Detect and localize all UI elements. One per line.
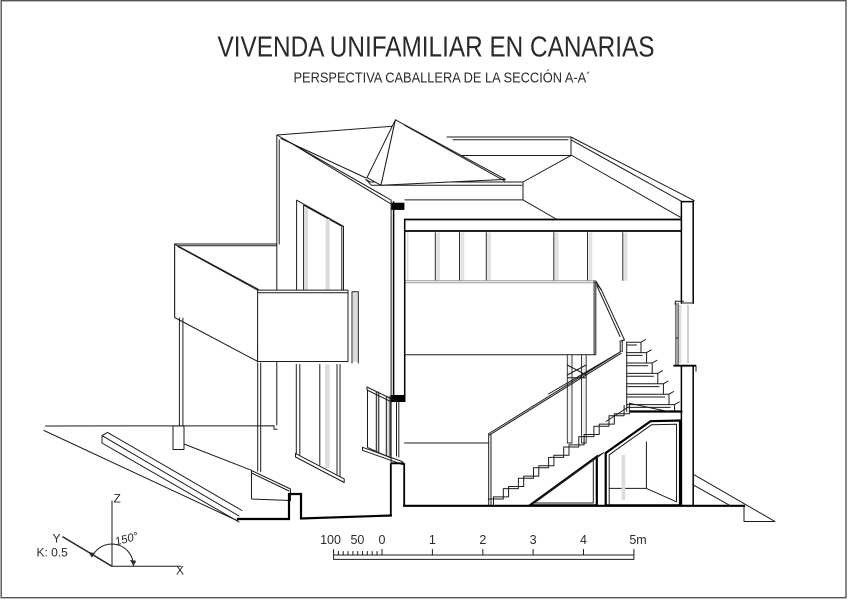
svg-text:4: 4 — [580, 533, 587, 547]
svg-text:X: X — [176, 564, 184, 578]
svg-text:0: 0 — [379, 533, 386, 547]
svg-text:1: 1 — [429, 533, 436, 547]
svg-text:VIVENDA UNIFAMILIAR EN CANARIA: VIVENDA UNIFAMILIAR EN CANARIAS — [218, 32, 655, 64]
svg-text:PERSPECTIVA CABALLERA DE LA SE: PERSPECTIVA CABALLERA DE LA SECCIÓN A-A´ — [294, 70, 591, 87]
svg-text:Y: Y — [53, 532, 61, 546]
svg-text:100: 100 — [320, 533, 341, 547]
svg-text:3: 3 — [530, 533, 537, 547]
svg-text:2: 2 — [479, 533, 486, 547]
svg-text:50: 50 — [350, 533, 364, 547]
svg-text:Z: Z — [114, 492, 121, 506]
svg-text:K: 0.5: K: 0.5 — [37, 546, 69, 560]
svg-text:5m: 5m — [629, 533, 646, 547]
